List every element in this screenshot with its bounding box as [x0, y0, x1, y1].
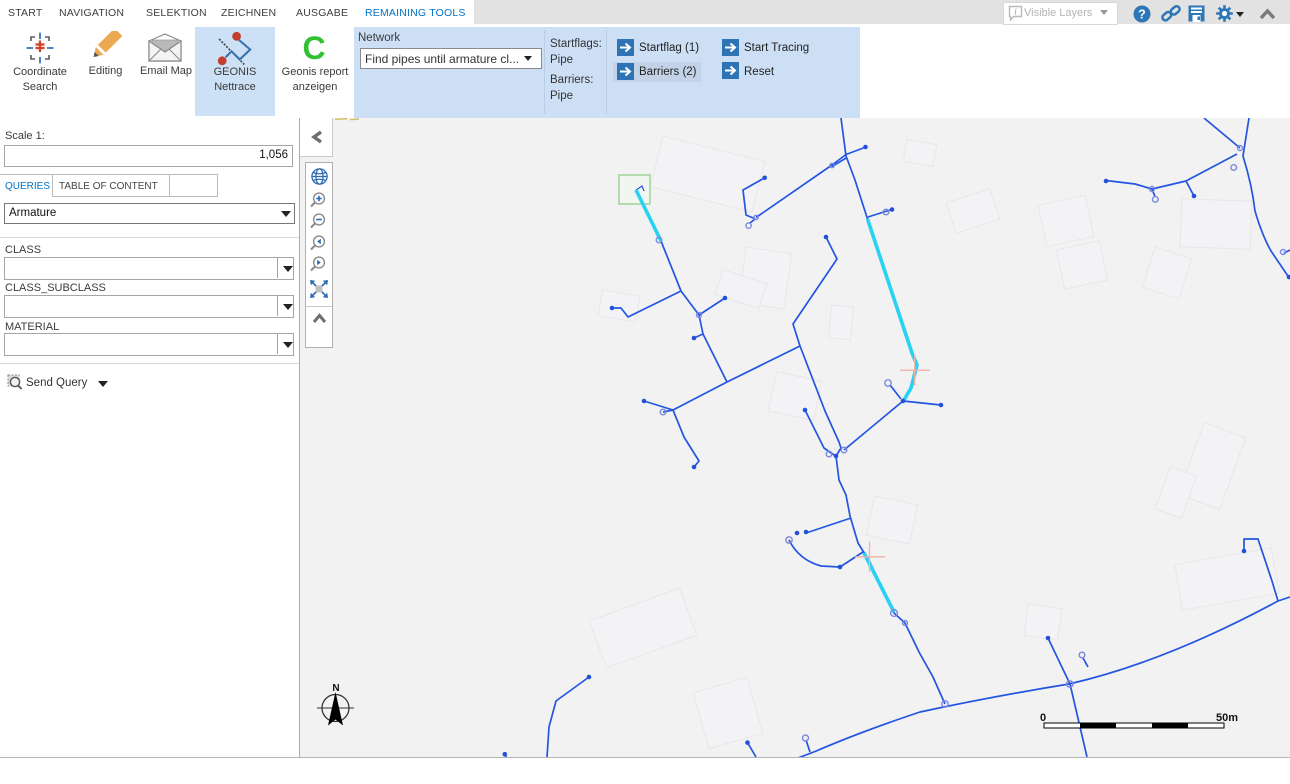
- svg-text:C: C: [302, 33, 325, 63]
- svg-text:?: ?: [1138, 7, 1146, 21]
- svg-text:N: N: [332, 683, 339, 694]
- svg-text:0: 0: [1040, 712, 1046, 724]
- svg-text:50m: 50m: [1216, 712, 1238, 724]
